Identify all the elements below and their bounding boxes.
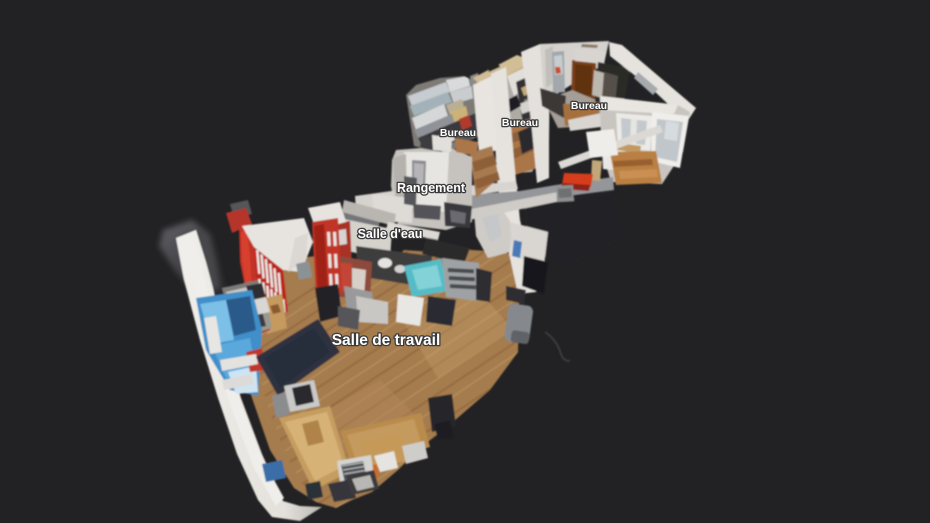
svg-text:Bureau: Bureau	[571, 100, 607, 112]
svg-text:Salle de travail: Salle de travail	[332, 332, 441, 349]
svg-text:Rangement: Rangement	[397, 181, 466, 195]
svg-text:Bureau: Bureau	[440, 127, 476, 139]
svg-text:Salle d'eau: Salle d'eau	[358, 227, 423, 241]
svg-text:Bureau: Bureau	[502, 117, 538, 129]
